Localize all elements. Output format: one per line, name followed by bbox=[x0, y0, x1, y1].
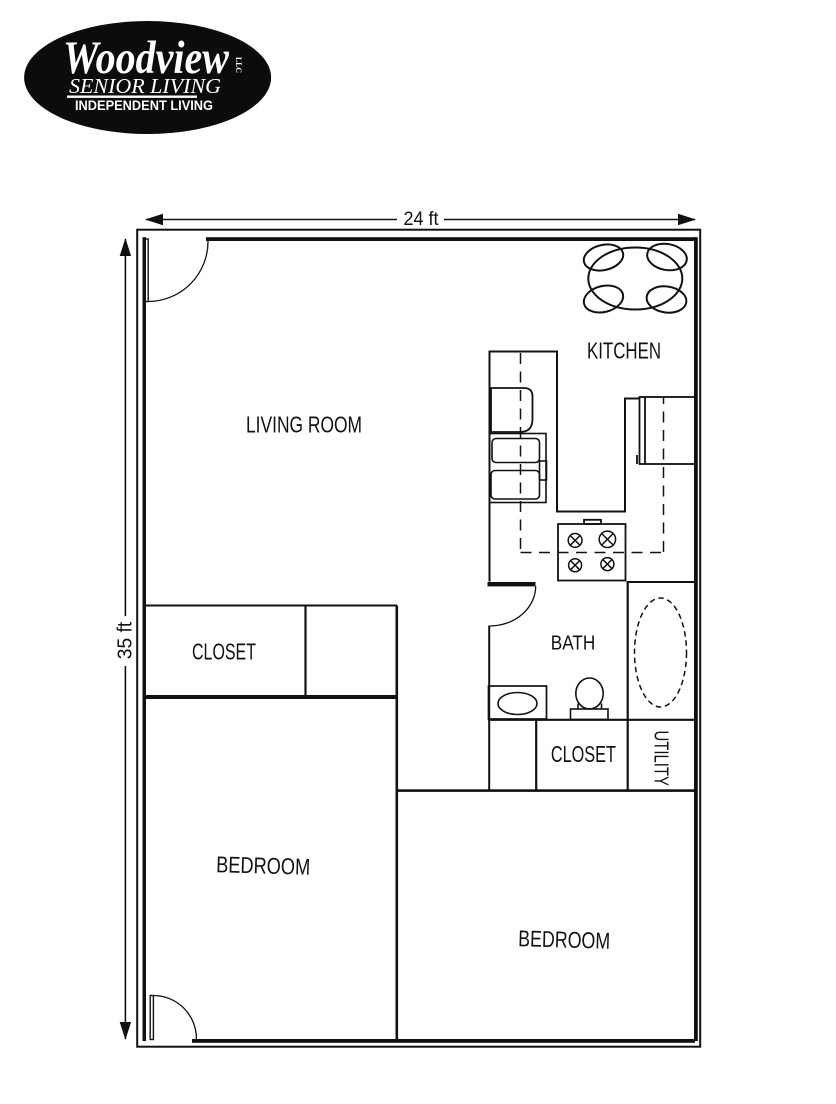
svg-text:CLOSET: CLOSET bbox=[192, 639, 256, 665]
svg-text:BEDROOM: BEDROOM bbox=[216, 851, 311, 880]
svg-text:LIVING ROOM: LIVING ROOM bbox=[246, 412, 362, 438]
svg-text:24 ft: 24 ft bbox=[404, 209, 440, 230]
svg-text:INDEPENDENT LIVING: INDEPENDENT LIVING bbox=[75, 98, 213, 113]
svg-text:35 ft: 35 ft bbox=[114, 621, 137, 659]
svg-text:SENIOR LIVING: SENIOR LIVING bbox=[69, 74, 221, 98]
svg-text:BATH: BATH bbox=[551, 633, 596, 655]
svg-text:KITCHEN: KITCHEN bbox=[587, 338, 661, 364]
svg-text:UTILITY: UTILITY bbox=[650, 730, 672, 786]
svg-text:BEDROOM: BEDROOM bbox=[518, 925, 611, 954]
svg-text:CLOSET: CLOSET bbox=[551, 741, 616, 767]
svg-text:LLC: LLC bbox=[234, 57, 243, 73]
